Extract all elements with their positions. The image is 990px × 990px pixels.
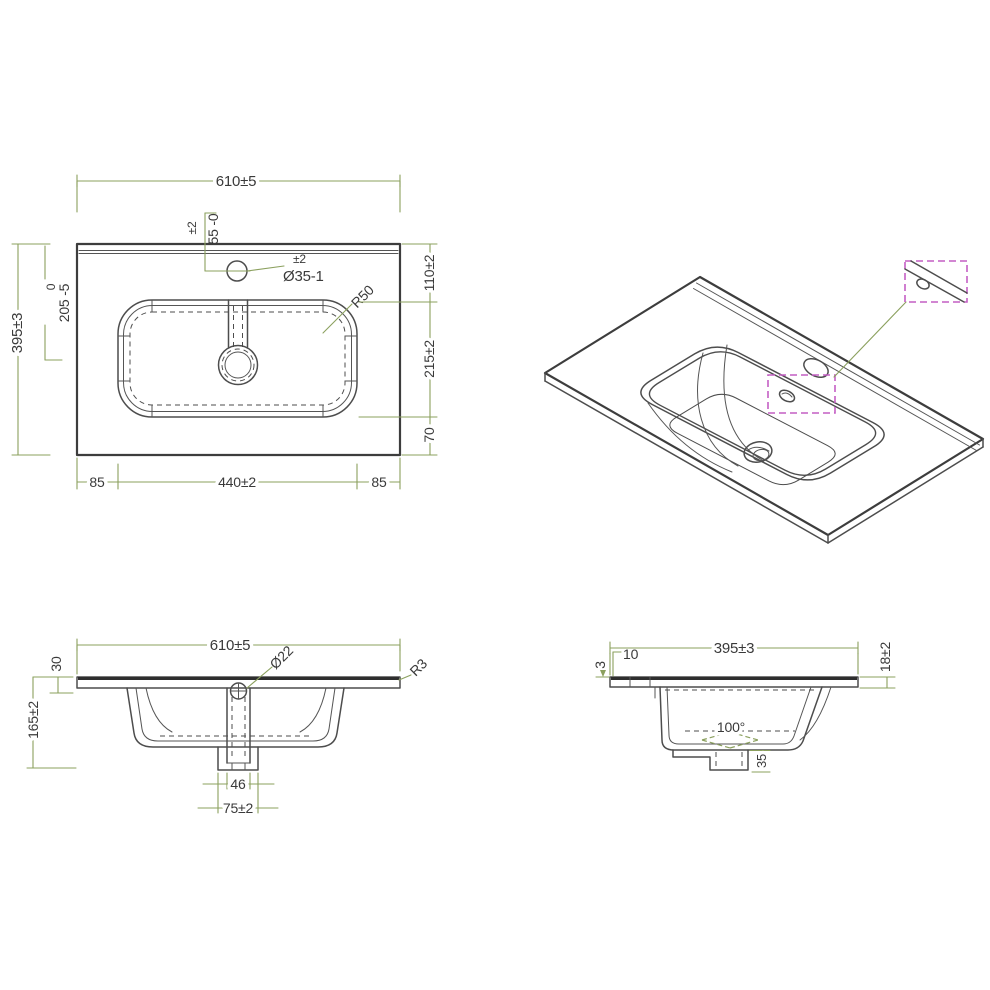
overflow-groove-left	[698, 353, 738, 466]
dim-faucet-hole: ±2 Ø35-1	[247, 252, 324, 285]
dim-text-margin-right: 85	[371, 474, 387, 490]
counter-top-face	[545, 277, 983, 535]
dim-plan-right-chain: 110±2 215±2 70	[359, 244, 437, 455]
dim-drain-boss-height: 35	[750, 751, 770, 773]
overflow-hole-section	[231, 683, 247, 699]
dim-plan-width: 610±5	[77, 173, 400, 212]
drain-boss-section	[218, 747, 258, 770]
bowl-inner-side	[667, 687, 811, 744]
dim-height-total: 165±2	[25, 677, 76, 768]
bowl-inner-profile	[136, 688, 335, 741]
detail-highlight-box	[768, 375, 835, 413]
basin-rim-iso	[641, 347, 884, 485]
dim-text-drain-channel-width: 46	[230, 776, 246, 792]
dim-text-bowl-angle: 100°	[717, 719, 745, 735]
detail-leader-line	[834, 302, 906, 377]
dim-text-basin-width: 440±2	[218, 474, 256, 490]
dim-edge-radius: R3	[399, 655, 430, 680]
dim-text-basin-front-to-back: 215±2	[421, 340, 437, 378]
dim-text-back-to-basin: 110±2	[421, 254, 437, 291]
side-section-view: 395±3 10 3 18±2 100° 35	[592, 640, 895, 772]
drain-boss-side	[673, 750, 748, 770]
isometric-view	[545, 261, 983, 543]
dim-side-depth: 395±3	[610, 640, 858, 675]
dim-plan-bottom-chain: 85 440±2 85	[77, 458, 400, 490]
dim-text-edge-height: 30	[48, 656, 64, 672]
dim-text-side-depth: 395±3	[714, 640, 755, 657]
dim-overflow-dia: Ø22	[247, 642, 296, 688]
overflow-hole-detail	[915, 277, 931, 291]
dim-front-edge-thickness: 18±2	[860, 641, 895, 688]
faucet-hole-iso	[801, 355, 831, 381]
dim-text-margin-left: 85	[89, 474, 105, 490]
dim-text-faucet-hole-tol: ±2	[293, 252, 306, 266]
dim-text-faucet-offset-tol: ±2	[185, 221, 199, 234]
dim-back-lip: 3	[592, 661, 609, 677]
dim-text-depth-total: 395±3	[9, 313, 26, 354]
dim-text-back-lip: 3	[592, 661, 608, 669]
dim-text-basin-radius: R50	[348, 281, 377, 310]
dim-text-faucet-offset: 55 -0	[205, 213, 221, 244]
dim-drain-channel-width: 46	[203, 773, 274, 792]
dim-text-back-ledge: 10	[623, 646, 639, 662]
plan-view: 610±5 ±2 55 -0 ±2 Ø35-1 R50 110±2	[9, 173, 437, 490]
front-section-view: 610±5 30 165±2 Ø22 R3 46	[25, 637, 430, 816]
bowl-fold-curve	[648, 403, 732, 472]
dim-front-width: 610±5	[77, 637, 400, 674]
dim-text-front-width: 610±5	[210, 637, 251, 654]
overflow-channel	[229, 300, 248, 350]
dim-text-height-total: 165±2	[25, 701, 41, 739]
dim-text-faucet-hole: Ø35-1	[283, 268, 324, 285]
basin-technical-drawing: 610±5 ±2 55 -0 ±2 Ø35-1 R50 110±2	[0, 0, 990, 990]
bowl-outer-profile	[127, 688, 344, 747]
dim-back-ledge: 10	[613, 646, 639, 676]
dim-text-plan-width: 610±5	[216, 173, 257, 190]
basin-outline	[118, 300, 357, 417]
dim-text-front-edge-thickness: 18±2	[877, 641, 893, 672]
drain-hole	[219, 346, 258, 385]
dim-edge-height: 30	[33, 656, 73, 693]
drain-iso	[742, 439, 774, 464]
detail-view-box	[905, 261, 967, 302]
overflow-hole-iso	[778, 388, 797, 404]
dim-text-drain-offset: 205 -5	[56, 283, 72, 322]
dim-text-drain-boss-width: 75±2	[223, 800, 254, 816]
dim-plan-left: 395±3 0 205 -5	[9, 244, 72, 455]
dim-text-drain-boss-height: 35	[754, 754, 769, 768]
dim-text-basin-to-front: 70	[421, 427, 437, 443]
drawing-sheet: 610±5 ±2 55 -0 ±2 Ø35-1 R50 110±2	[0, 0, 990, 990]
